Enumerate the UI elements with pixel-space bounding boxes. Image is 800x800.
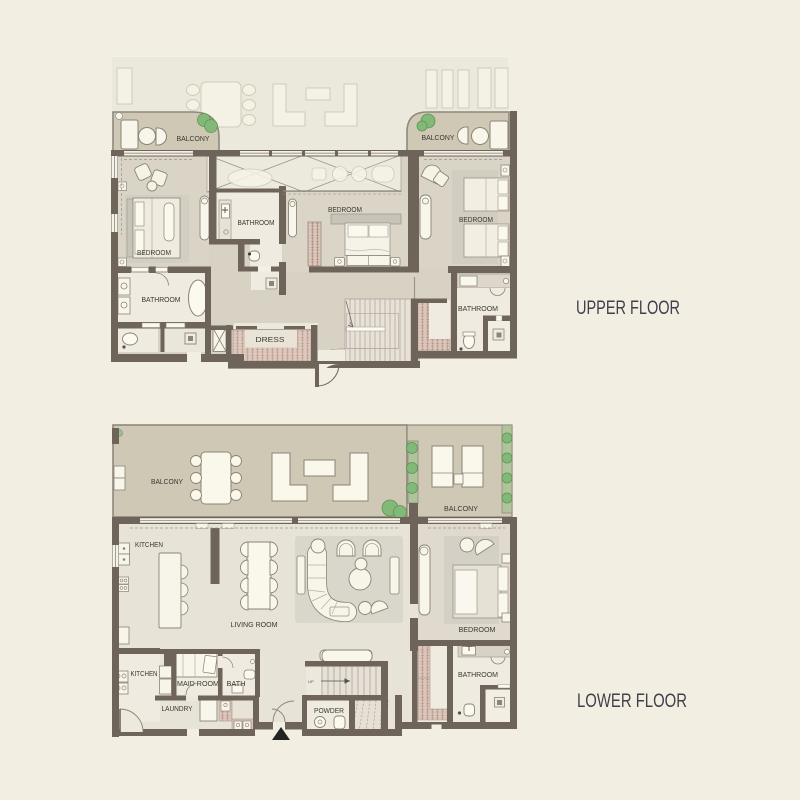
svg-text:BALCONY: BALCONY [177, 134, 210, 143]
svg-text:BATH: BATH [227, 679, 246, 688]
svg-text:BEDROOM: BEDROOM [328, 205, 362, 214]
svg-text:LOWER FLOOR: LOWER FLOOR [577, 690, 687, 712]
svg-text:POWDER: POWDER [314, 706, 344, 715]
svg-text:BEDROOM: BEDROOM [459, 625, 496, 634]
svg-text:DRESS: DRESS [256, 335, 285, 344]
svg-text:KITCHEN: KITCHEN [131, 669, 158, 678]
svg-text:BATHROOM: BATHROOM [458, 670, 498, 679]
svg-text:BATHROOM: BATHROOM [142, 295, 181, 304]
svg-text:BALCONY: BALCONY [444, 504, 478, 513]
svg-text:LAUNDRY: LAUNDRY [162, 704, 193, 713]
svg-text:UP: UP [308, 679, 314, 684]
svg-text:BALCONY: BALCONY [422, 133, 455, 142]
svg-text:KITCHEN: KITCHEN [135, 540, 163, 549]
svg-text:BEDROOM: BEDROOM [137, 248, 171, 257]
svg-text:MAID ROOM: MAID ROOM [177, 679, 219, 688]
svg-text:BATHROOM: BATHROOM [458, 304, 498, 313]
svg-text:LIVING ROOM: LIVING ROOM [231, 620, 278, 629]
svg-text:BALCONY: BALCONY [151, 477, 183, 486]
svg-text:BEDROOM: BEDROOM [459, 215, 493, 224]
svg-text:UPPER FLOOR: UPPER FLOOR [576, 297, 680, 319]
svg-text:BATHROOM: BATHROOM [238, 218, 275, 227]
